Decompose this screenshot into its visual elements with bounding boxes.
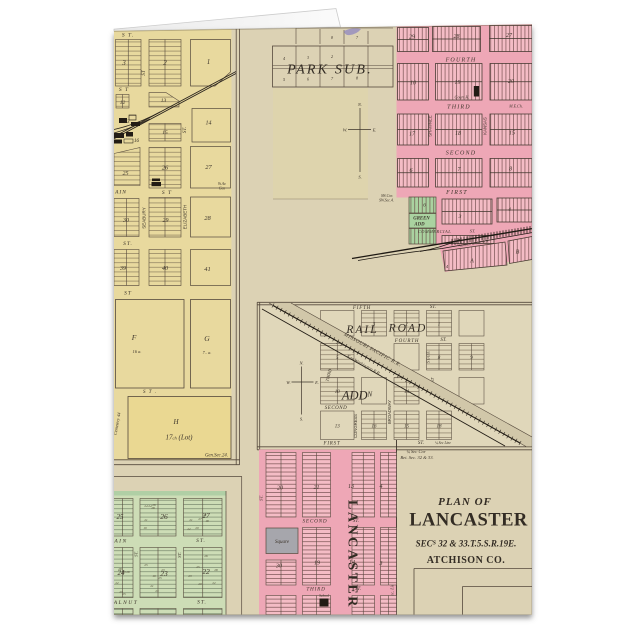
svg-text:LANCASTER: LANCASTER bbox=[345, 500, 360, 609]
svg-text:15: 15 bbox=[509, 131, 515, 137]
svg-text:S.: S. bbox=[300, 417, 303, 422]
svg-text:ST.: ST. bbox=[430, 305, 437, 310]
svg-text:12: 12 bbox=[120, 100, 126, 106]
svg-text:24: 24 bbox=[144, 504, 148, 508]
svg-text:28: 28 bbox=[118, 567, 122, 571]
svg-text:18: 18 bbox=[205, 519, 209, 523]
svg-text:5: 5 bbox=[283, 77, 285, 82]
svg-text:16: 16 bbox=[134, 139, 140, 144]
svg-text:21: 21 bbox=[144, 518, 148, 522]
svg-text:S T .: S T . bbox=[143, 390, 157, 395]
svg-text:9t.Av.: 9t.Av. bbox=[218, 182, 226, 186]
svg-text:6: 6 bbox=[410, 168, 413, 174]
svg-text:25: 25 bbox=[122, 592, 126, 596]
svg-text:3: 3 bbox=[379, 561, 383, 567]
svg-text:ST.: ST. bbox=[123, 241, 133, 247]
svg-text:ATCHISON CO.: ATCHISON CO. bbox=[427, 555, 506, 566]
svg-text:27: 27 bbox=[506, 33, 513, 39]
svg-text:22: 22 bbox=[202, 567, 210, 576]
svg-text:THIRD: THIRD bbox=[306, 587, 325, 593]
svg-text:7.. a.: 7.. a. bbox=[203, 350, 212, 355]
svg-text:M.E.Ch.: M.E.Ch. bbox=[508, 104, 522, 109]
svg-text:20: 20 bbox=[277, 486, 283, 492]
svg-text:ST.: ST. bbox=[259, 495, 264, 501]
svg-text:23: 23 bbox=[161, 568, 165, 572]
svg-text:AIN: AIN bbox=[114, 190, 127, 196]
svg-text:20: 20 bbox=[195, 526, 199, 530]
svg-text:ADD: ADD bbox=[413, 223, 425, 228]
svg-text:FIFTH: FIFTH bbox=[352, 306, 371, 311]
svg-text:26: 26 bbox=[152, 503, 156, 507]
svg-text:G: G bbox=[204, 334, 210, 343]
svg-text:24: 24 bbox=[148, 504, 152, 508]
svg-text:19: 19 bbox=[143, 526, 147, 530]
svg-text:GREEN: GREEN bbox=[413, 217, 430, 222]
svg-text:19: 19 bbox=[455, 80, 461, 86]
svg-text:ST.: ST. bbox=[440, 338, 447, 343]
svg-text:SW.Sec.4.: SW.Sec.4. bbox=[379, 199, 394, 203]
svg-text:S T: S T bbox=[119, 87, 129, 93]
svg-text:ST.: ST. bbox=[133, 551, 138, 556]
svg-text:FIRST: FIRST bbox=[445, 190, 468, 196]
svg-text:8: 8 bbox=[509, 167, 512, 173]
svg-text:26: 26 bbox=[162, 165, 169, 172]
svg-text:ST.: ST. bbox=[183, 127, 188, 134]
svg-text:28: 28 bbox=[126, 570, 130, 574]
svg-text:13: 13 bbox=[161, 98, 167, 104]
svg-text:19: 19 bbox=[314, 561, 320, 567]
svg-text:S T.: S T. bbox=[122, 33, 134, 39]
svg-text:RAIL: RAIL bbox=[345, 324, 378, 336]
svg-text:4: 4 bbox=[508, 206, 511, 213]
svg-text:Gen.Sec.24.: Gen.Sec.24. bbox=[205, 454, 228, 459]
svg-text:¼ Sec Cor: ¼ Sec Cor bbox=[406, 449, 425, 454]
svg-text:15: 15 bbox=[404, 424, 410, 429]
svg-text:Bet. Sec. 32 & 33.: Bet. Sec. 32 & 33. bbox=[400, 455, 433, 460]
svg-text:SECOND: SECOND bbox=[446, 151, 477, 157]
svg-text:ST.: ST. bbox=[418, 441, 425, 446]
svg-text:13: 13 bbox=[335, 424, 341, 429]
svg-text:A: A bbox=[469, 259, 474, 265]
svg-text:29: 29 bbox=[163, 218, 169, 224]
svg-text:23: 23 bbox=[188, 574, 192, 578]
svg-text:25: 25 bbox=[196, 565, 200, 569]
svg-text:41: 41 bbox=[204, 266, 211, 273]
svg-text:ST.: ST. bbox=[197, 600, 207, 606]
svg-text:CONGRESS: CONGRESS bbox=[353, 414, 358, 438]
svg-text:ALNUT: ALNUT bbox=[113, 600, 139, 606]
svg-text:21: 21 bbox=[189, 518, 193, 522]
svg-text:17ch (Lot): 17ch (Lot) bbox=[166, 434, 194, 442]
svg-text:1: 1 bbox=[438, 322, 441, 327]
svg-text:ELIZABETH: ELIZABETH bbox=[183, 205, 188, 230]
svg-text:10: 10 bbox=[335, 390, 341, 395]
svg-text:FIRST: FIRST bbox=[322, 442, 340, 447]
svg-text:30: 30 bbox=[275, 564, 282, 570]
svg-text:28: 28 bbox=[204, 215, 211, 222]
svg-text:PLAN OF: PLAN OF bbox=[438, 496, 492, 508]
svg-text:School: School bbox=[319, 594, 329, 598]
svg-text:4: 4 bbox=[283, 56, 285, 61]
svg-text:21: 21 bbox=[150, 584, 154, 588]
svg-text:10: 10 bbox=[410, 81, 416, 87]
svg-text:W.: W. bbox=[343, 128, 348, 133]
svg-text:SECS 32 & 33.T.5.S.R.19E.: SECS 32 & 33.T.5.S.R.19E. bbox=[416, 539, 517, 549]
svg-text:Court H.: Court H. bbox=[455, 95, 470, 100]
svg-text:20: 20 bbox=[198, 582, 202, 586]
svg-text:S T: S T bbox=[162, 190, 172, 196]
svg-text:39: 39 bbox=[119, 266, 126, 272]
svg-text:2: 2 bbox=[163, 59, 167, 67]
svg-text:18: 18 bbox=[437, 424, 443, 429]
svg-text:26: 26 bbox=[160, 512, 168, 521]
svg-text:H: H bbox=[172, 418, 179, 426]
svg-text:LANCASTER: LANCASTER bbox=[409, 511, 528, 531]
svg-text:23: 23 bbox=[119, 590, 123, 594]
svg-text:¼ Sec Line: ¼ Sec Line bbox=[435, 441, 451, 445]
svg-text:13: 13 bbox=[348, 484, 354, 490]
svg-text:17: 17 bbox=[409, 132, 416, 138]
svg-text:18: 18 bbox=[455, 131, 461, 137]
svg-text:26: 26 bbox=[204, 554, 208, 558]
svg-text:N.: N. bbox=[357, 102, 362, 107]
svg-text:21: 21 bbox=[203, 513, 207, 517]
svg-text:16 a.: 16 a. bbox=[133, 349, 142, 354]
svg-text:30: 30 bbox=[122, 218, 129, 224]
svg-text:ST.: ST. bbox=[177, 552, 182, 557]
svg-text:25: 25 bbox=[158, 576, 162, 580]
svg-text:SECOND: SECOND bbox=[325, 406, 347, 411]
svg-text:Gen: Gen bbox=[219, 187, 225, 191]
svg-text:20: 20 bbox=[508, 79, 514, 85]
svg-text:ST.: ST. bbox=[470, 229, 475, 234]
svg-text:S.: S. bbox=[358, 175, 361, 180]
svg-text:3: 3 bbox=[121, 59, 126, 67]
svg-text:E.: E. bbox=[314, 380, 319, 385]
svg-text:AIN: AIN bbox=[113, 539, 127, 545]
svg-text:SEABURY: SEABURY bbox=[142, 207, 147, 228]
svg-text:BROADWAY: BROADWAY bbox=[387, 400, 392, 424]
svg-text:2: 2 bbox=[331, 54, 333, 59]
svg-text:8: 8 bbox=[331, 35, 333, 40]
svg-text:E.: E. bbox=[372, 128, 377, 133]
svg-text:25: 25 bbox=[123, 171, 129, 177]
svg-text:16: 16 bbox=[372, 424, 378, 429]
svg-text:ROAD: ROAD bbox=[388, 323, 428, 335]
svg-text:29: 29 bbox=[409, 35, 415, 41]
svg-text:KANSAS: KANSAS bbox=[483, 117, 488, 135]
svg-text:SW.Cor.: SW.Cor. bbox=[381, 194, 393, 198]
svg-text:25: 25 bbox=[117, 513, 125, 521]
svg-text:SECOND: SECOND bbox=[303, 519, 328, 525]
svg-text:N.: N. bbox=[299, 361, 304, 366]
svg-text:13: 13 bbox=[125, 120, 131, 125]
svg-text:21: 21 bbox=[314, 485, 320, 491]
svg-text:3: 3 bbox=[307, 55, 309, 60]
svg-text:15: 15 bbox=[162, 130, 168, 136]
svg-text:F: F bbox=[131, 333, 137, 342]
svg-text:28: 28 bbox=[214, 568, 218, 572]
svg-text:Square: Square bbox=[275, 540, 290, 545]
svg-text:23: 23 bbox=[155, 589, 159, 593]
svg-text:27: 27 bbox=[198, 517, 202, 521]
svg-text:1: 1 bbox=[207, 58, 211, 66]
svg-text:ST: ST bbox=[124, 291, 132, 297]
svg-text:28: 28 bbox=[454, 34, 460, 40]
svg-text:22: 22 bbox=[212, 581, 216, 585]
svg-text:19: 19 bbox=[152, 574, 156, 578]
svg-text:ST.: ST. bbox=[196, 538, 206, 544]
svg-text:FOURTH: FOURTH bbox=[445, 58, 477, 64]
svg-text:27: 27 bbox=[205, 164, 212, 171]
svg-text:22: 22 bbox=[187, 527, 191, 531]
svg-text:THIRD: THIRD bbox=[447, 105, 471, 111]
svg-text:PARK SUB.: PARK SUB. bbox=[286, 63, 373, 78]
svg-text:B: B bbox=[516, 250, 520, 256]
svg-text:3: 3 bbox=[458, 214, 462, 220]
svg-text:40: 40 bbox=[162, 265, 168, 272]
svg-text:25: 25 bbox=[144, 563, 148, 567]
svg-text:COMMERCIAL: COMMERCIAL bbox=[418, 229, 451, 234]
svg-text:W.: W. bbox=[286, 380, 291, 385]
svg-text:22: 22 bbox=[115, 581, 119, 585]
svg-text:4: 4 bbox=[380, 483, 383, 490]
svg-text:14: 14 bbox=[206, 120, 212, 127]
